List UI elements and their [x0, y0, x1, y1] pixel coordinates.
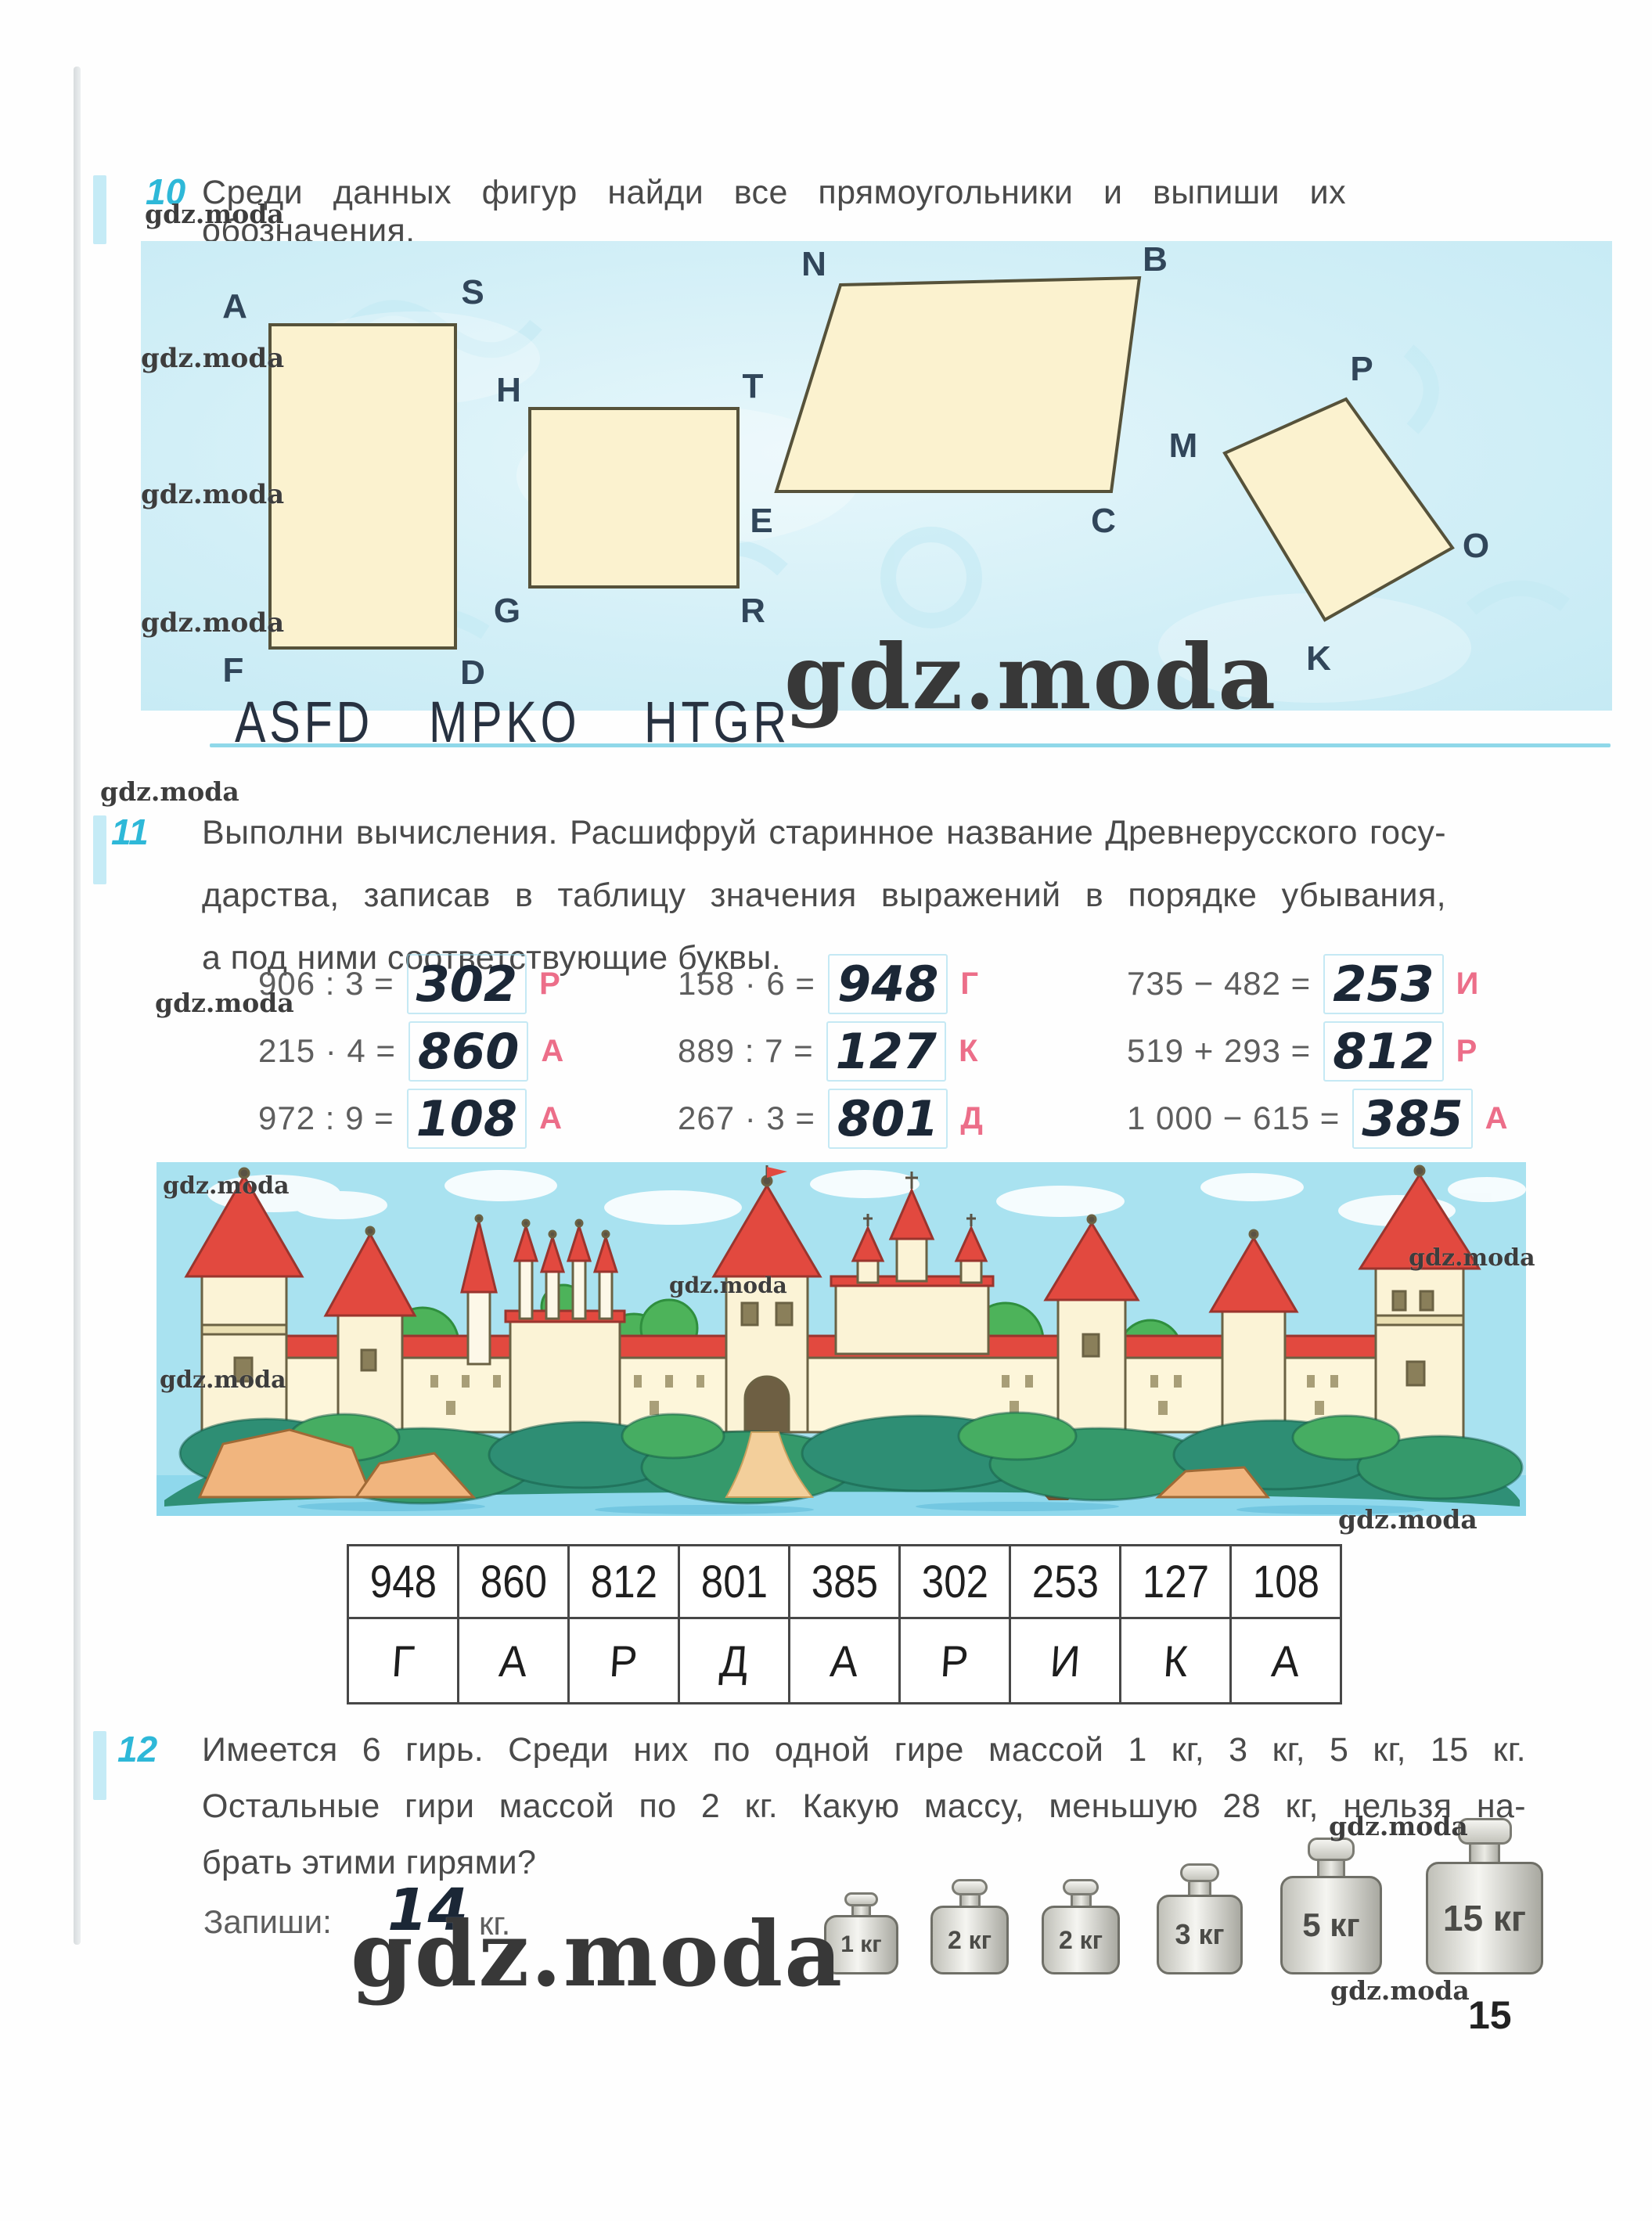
equation-expression: 267 · 3 =: [678, 1100, 815, 1137]
table-value-cell: 302: [901, 1546, 1011, 1617]
table-value-cell: 860: [459, 1546, 570, 1617]
answer-underline: [210, 743, 1611, 747]
watermark: gdz.moda: [100, 776, 239, 807]
weight-knob: [952, 1879, 988, 1895]
watermark: gdz.moda: [784, 625, 1277, 729]
table-letter-cell: Р: [570, 1619, 680, 1702]
equation-answer: 860: [409, 1021, 528, 1082]
task11-number: 11: [111, 811, 149, 853]
equation-row: 215 · 4 = 860 А: [258, 1019, 563, 1083]
equation-expression: 889 : 7 =: [678, 1032, 814, 1070]
weight-body: 3 кг: [1157, 1895, 1243, 1974]
table-value-cell: 948: [349, 1546, 459, 1617]
write-label: Запиши:: [203, 1903, 332, 1941]
weight-neck: [1188, 1882, 1211, 1895]
table-letter: Р: [608, 1636, 639, 1686]
equation-answer: 302: [407, 954, 527, 1014]
table-letter: И: [1049, 1636, 1082, 1686]
equation-answer: 385: [1352, 1089, 1472, 1149]
task12-tick: [93, 1731, 106, 1800]
vertex-label: B: [1143, 241, 1168, 279]
table-letter: А: [829, 1636, 860, 1686]
task11-text-line1: Выполни вычисления. Расшифруй старинное …: [202, 814, 1446, 852]
equation-answer: 253: [1323, 954, 1443, 1014]
table-letter-cell: А: [1232, 1619, 1340, 1702]
equation-row: 267 · 3 = 801 Д: [678, 1086, 983, 1150]
equation-row: 519 + 293 = 812 Р: [1127, 1019, 1477, 1083]
task12-text-line3: брать этими гирями?: [202, 1844, 536, 1882]
table-value-cell: 127: [1121, 1546, 1232, 1617]
weight-body: 2 кг: [1042, 1906, 1120, 1974]
equation-expression: 972 : 9 =: [258, 1100, 394, 1137]
page-number: 15: [1468, 1992, 1512, 2038]
task12-number: 12: [117, 1728, 157, 1770]
weight-body: 2 кг: [930, 1906, 1009, 1974]
watermark: gdz.moda: [141, 343, 284, 374]
table-value: 253: [1031, 1556, 1098, 1608]
watermark: gdz.moda: [160, 1366, 286, 1394]
table-value: 108: [1252, 1556, 1319, 1608]
task10-title: Среди данных фигур найди все прямоугольн…: [202, 174, 1346, 251]
weight-body: 15 кг: [1426, 1862, 1543, 1974]
weight-label: 2 кг: [948, 1926, 992, 1955]
equation-row: 158 · 6 = 948 Г: [678, 952, 978, 1016]
table-value: 801: [700, 1556, 767, 1608]
table-letter: А: [1270, 1636, 1301, 1686]
weight-3kg: 3 кг: [1157, 1863, 1243, 1974]
equation-letter: Р: [1456, 1034, 1477, 1069]
table-letter: Р: [939, 1636, 970, 1686]
weight-body: 5 кг: [1280, 1876, 1382, 1974]
table-letter-cell: Р: [901, 1619, 1011, 1702]
equation-letter: А: [1485, 1101, 1508, 1136]
weight-neck: [1071, 1895, 1092, 1906]
table-value: 860: [480, 1556, 546, 1608]
equation-answer: 948: [828, 954, 948, 1014]
cipher-table: 948 860 812 801 385 302 253 127 108 Г А …: [347, 1544, 1342, 1704]
weight-neck: [1469, 1845, 1501, 1862]
workbook-page: 10 Среди данных фигур найди все прямоуго…: [0, 0, 1652, 2221]
vertex-label: D: [460, 653, 485, 692]
weight-knob: [1180, 1863, 1220, 1882]
weight-neck: [959, 1895, 981, 1906]
castle-illustration: [157, 1162, 1526, 1516]
watermark: gdz.moda: [1338, 1504, 1477, 1535]
table-value: 127: [1142, 1556, 1208, 1608]
vertex-label: S: [461, 273, 484, 311]
table-value: 812: [590, 1556, 657, 1608]
table-value-cell: 108: [1232, 1546, 1340, 1617]
equation-expression: 735 − 482 =: [1127, 965, 1311, 1003]
table-value-cell: 812: [570, 1546, 680, 1617]
vertex-label: M: [1169, 427, 1198, 465]
weight-neck: [851, 1906, 872, 1916]
equation-row: 889 : 7 = 127 К: [678, 1019, 977, 1083]
weight-label: 15 кг: [1443, 1897, 1526, 1939]
table-value-cell: 385: [790, 1546, 901, 1617]
table-letters-row: Г А Р Д А Р И К А: [349, 1619, 1340, 1702]
table-letter: Д: [718, 1636, 750, 1686]
equation-row: 735 − 482 = 253 И: [1127, 952, 1478, 1016]
equation-row: 1 000 − 615 = 385 А: [1127, 1086, 1508, 1150]
task12-text-line1: Имеется 6 гирь. Среди них по одной гире …: [202, 1731, 1526, 1769]
weight-2kg: 2 кг: [1042, 1879, 1120, 1974]
table-value: 302: [921, 1556, 988, 1608]
table-letter-cell: А: [459, 1619, 570, 1702]
vertex-label: H: [496, 371, 521, 409]
weight-knob: [844, 1892, 879, 1906]
watermark: gdz.moda: [351, 1902, 844, 2007]
equation-expression: 519 + 293 =: [1127, 1032, 1311, 1070]
watermark: gdz.moda: [1329, 1811, 1468, 1841]
vertex-label: G: [494, 592, 520, 630]
task10-tick: [93, 175, 106, 244]
table-value-cell: 801: [680, 1546, 790, 1617]
figure-htgr: H T G R: [494, 367, 765, 630]
table-letter: К: [1161, 1636, 1189, 1686]
equation-expression: 158 · 6 =: [678, 965, 815, 1003]
table-letter-cell: И: [1011, 1619, 1121, 1702]
vertex-label: N: [801, 245, 826, 283]
equation-letter: Р: [539, 967, 560, 1002]
watermark: gdz.moda: [141, 607, 284, 639]
watermark: gdz.moda: [1330, 1975, 1470, 2006]
table-letter: А: [498, 1636, 529, 1686]
vertex-label: K: [1306, 639, 1331, 678]
table-value-cell: 253: [1011, 1546, 1121, 1617]
watermark: gdz.moda: [141, 479, 284, 510]
equation-row: 906 : 3 = 302 Р: [258, 952, 560, 1016]
table-letter-cell: Г: [349, 1619, 459, 1702]
weight-knob: [1063, 1879, 1099, 1895]
weight-2kg: 2 кг: [930, 1879, 1009, 1974]
equation-letter: Д: [960, 1101, 983, 1136]
vertex-label: T: [743, 367, 764, 405]
equation-expression: 215 · 4 =: [258, 1032, 396, 1070]
table-letter-cell: А: [790, 1619, 901, 1702]
equation-letter: А: [539, 1101, 562, 1136]
page-edge-shadow: [74, 67, 81, 1945]
equation-row: 972 : 9 = 108 А: [258, 1086, 562, 1150]
weight-label: 1 кг: [840, 1931, 882, 1958]
table-value: 385: [811, 1556, 877, 1608]
task12-text-line2: Остальные гири массой по 2 кг. Какую мас…: [202, 1787, 1526, 1826]
equation-answer: 801: [828, 1089, 948, 1149]
watermark: gdz.moda: [669, 1272, 787, 1298]
vertex-label: O: [1463, 527, 1489, 565]
table-values-row: 948 860 812 801 385 302 253 127 108: [349, 1546, 1340, 1619]
watermark: gdz.moda: [1409, 1244, 1535, 1272]
watermark: gdz.moda: [163, 1172, 290, 1200]
weight-label: 3 кг: [1175, 1918, 1224, 1951]
vertex-label: R: [740, 592, 765, 630]
task11-text-line2: дарства, записав в таблицу значения выра…: [202, 877, 1446, 915]
equation-letter: А: [541, 1034, 563, 1069]
equation-letter: Г: [960, 967, 978, 1002]
equation-answer: 812: [1323, 1021, 1443, 1082]
equation-answer: 108: [407, 1089, 527, 1149]
equation-answer: 127: [826, 1021, 946, 1082]
weight-5kg: 5 кг: [1280, 1838, 1382, 1974]
weight-label: 2 кг: [1059, 1926, 1103, 1955]
table-letter: Г: [390, 1636, 416, 1686]
watermark: gdz.moda: [155, 988, 294, 1018]
equation-expression: 1 000 − 615 =: [1127, 1100, 1340, 1137]
weight-neck: [1317, 1861, 1344, 1876]
vertex-label: E: [750, 502, 772, 540]
task11-tick: [93, 815, 106, 884]
vertex-label: A: [222, 287, 247, 326]
table-value: 948: [369, 1556, 436, 1608]
vertex-label: C: [1091, 502, 1116, 540]
vertex-label: P: [1350, 350, 1373, 388]
watermark: gdz.moda: [145, 199, 284, 229]
equation-letter: И: [1456, 967, 1479, 1002]
table-letter-cell: Д: [680, 1619, 790, 1702]
equation-letter: К: [959, 1034, 977, 1069]
vertex-label: F: [223, 651, 244, 689]
table-letter-cell: К: [1121, 1619, 1232, 1702]
weight-label: 5 кг: [1302, 1906, 1360, 1944]
weight-15kg: 15 кг: [1426, 1818, 1543, 1974]
